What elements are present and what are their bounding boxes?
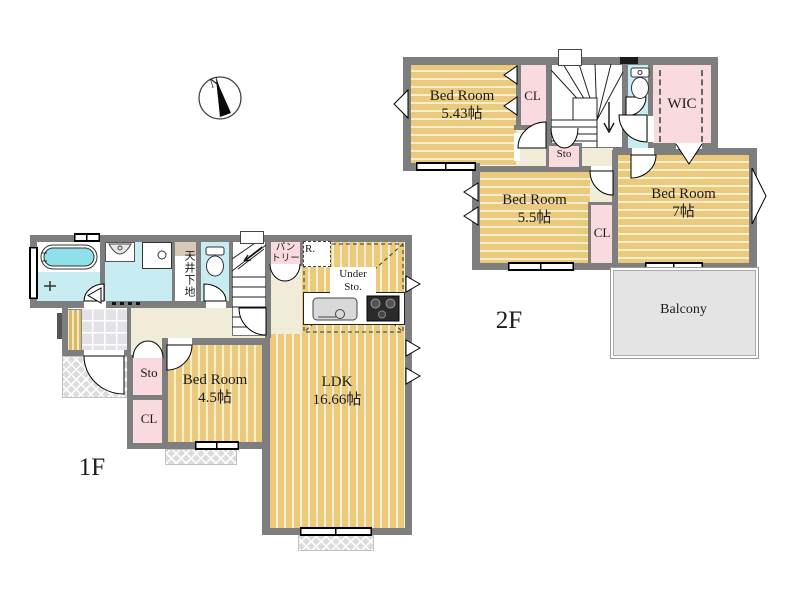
double-door-icon <box>270 264 300 281</box>
pantry-line2: トリー <box>269 254 302 265</box>
kitchen-sink-icon <box>312 297 358 321</box>
window <box>508 262 574 271</box>
wall <box>127 307 131 355</box>
room-name: Bed Room <box>479 192 590 210</box>
shower-faucet-icon <box>42 280 58 292</box>
wall <box>62 301 68 356</box>
door-opening <box>206 301 226 308</box>
room-label-cl-1f: CL <box>133 411 165 426</box>
door-arc-icon <box>631 155 656 178</box>
room-label-bedroom-7: Bed Room 7帖 <box>618 186 749 221</box>
folding-door-icon <box>675 144 703 165</box>
window-arrow-icon <box>463 183 478 201</box>
floor-label-2f: 2F <box>486 306 532 336</box>
terrace-south <box>165 449 237 465</box>
room-label-cl-top: CL <box>519 88 546 103</box>
wall <box>711 57 718 153</box>
window <box>74 233 100 242</box>
room-label-pantry: パン トリー <box>269 243 302 265</box>
terrace-ldk <box>298 535 374 551</box>
room-label-wic: WIC <box>653 96 711 114</box>
window-arrow-icon <box>406 276 421 292</box>
door-arc-icon <box>518 122 546 148</box>
room-name: LDK <box>282 374 392 392</box>
room-label-sto-1f: Sto <box>133 365 165 380</box>
room-label-cl-mid: CL <box>591 225 613 240</box>
room-size: 5.5帖 <box>479 210 590 228</box>
wall <box>172 242 175 302</box>
window-small <box>240 231 264 244</box>
toilet-icon <box>628 67 652 101</box>
bay-window-icon <box>752 168 767 224</box>
window-arrow-icon <box>406 340 421 356</box>
door-arc-icon <box>590 171 613 195</box>
door-opening <box>648 116 654 142</box>
room-name: Bed Room <box>168 372 262 390</box>
room-ldk <box>270 334 405 528</box>
double-door-icon <box>551 128 578 148</box>
entrance-genkan <box>80 308 128 354</box>
room-label-bedroom-5-43: Bed Room 5.43帖 <box>406 88 518 123</box>
pantry-line1: パン <box>269 243 302 254</box>
toilet-icon <box>203 246 227 278</box>
window <box>195 441 239 450</box>
room-name: Bed Room <box>618 186 749 204</box>
compass-north-label: N <box>208 74 222 91</box>
window <box>416 162 476 171</box>
door-arc-icon <box>204 284 226 301</box>
washbasin-icon <box>105 242 135 262</box>
room-name: Bed Room <box>406 88 518 106</box>
under-sto-line1: Under <box>330 268 376 281</box>
under-sto-line2: Sto. <box>330 281 376 294</box>
room-size: 5.43帖 <box>406 106 518 124</box>
sliding-door-icon <box>87 288 101 303</box>
door-arc-icon <box>167 345 192 370</box>
room-label-ldk: LDK 16.66帖 <box>282 374 392 409</box>
compass: N <box>194 70 246 122</box>
door-arc-icon <box>84 356 124 394</box>
wall <box>130 395 165 400</box>
room-label-ceiling-base: 天井下地 <box>177 248 195 300</box>
window-small <box>620 57 638 64</box>
floor-label-1f: 1F <box>68 453 116 483</box>
room-size: 16.66帖 <box>282 392 392 410</box>
bathtub-icon <box>40 244 98 270</box>
wall <box>127 443 168 449</box>
label-refrigerator: R. <box>305 243 327 256</box>
window <box>300 527 372 536</box>
room-label-bedroom-4-5: Bed Room 4.5帖 <box>168 372 262 407</box>
room-label-sto-2f: Sto <box>549 148 579 161</box>
door-arc-icon <box>619 115 647 142</box>
window-small <box>558 49 582 66</box>
double-door-icon <box>133 341 163 358</box>
room-label-balcony: Balcony <box>612 302 755 319</box>
room-label-bedroom-5-5: Bed Room 5.5帖 <box>479 192 590 227</box>
room-size: 7帖 <box>618 204 749 222</box>
label-under-sto: Under Sto. <box>330 268 376 294</box>
door-arc-icon <box>239 308 266 335</box>
stove-icon <box>366 295 400 322</box>
wall <box>262 338 270 535</box>
wall <box>196 242 201 302</box>
sliding-door-track <box>112 302 142 305</box>
wall <box>588 202 614 205</box>
closet-door-icon <box>503 66 517 84</box>
window-arrow-icon <box>406 368 421 384</box>
window <box>29 247 38 299</box>
window-arrow-icon <box>463 207 478 225</box>
washing-machine-icon <box>142 242 172 269</box>
room-size: 4.5帖 <box>168 390 262 408</box>
floorplan-canvas: N <box>0 0 800 600</box>
